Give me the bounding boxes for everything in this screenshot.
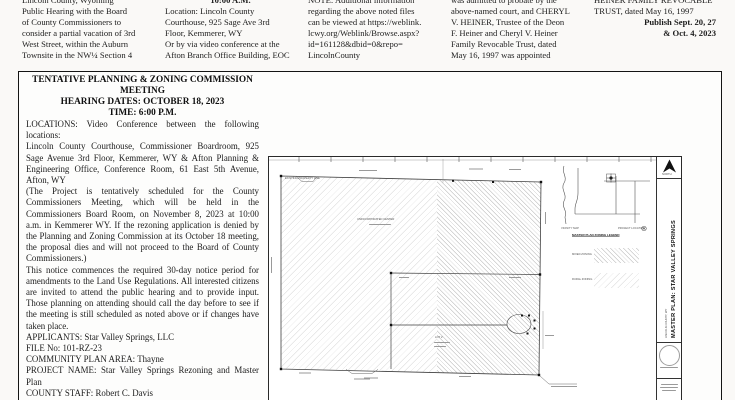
border-tick-marks bbox=[299, 157, 651, 162]
parcel-hatch-area bbox=[281, 176, 541, 375]
notice-paragraph: APPLICANTS: Star Valley Springs, LLC bbox=[26, 332, 259, 343]
legend-item-label: MIXED ZONING bbox=[572, 253, 592, 256]
property-line-label: EXISTING PROPERTY LINE bbox=[285, 177, 320, 180]
legend-swatch-light-hatch bbox=[594, 273, 639, 288]
notice-text-column: TENTATIVE PLANNING & ZONING COMMISSION M… bbox=[26, 75, 259, 399]
news-col1-body: Public Hearing with the Board of County … bbox=[22, 6, 153, 61]
news-col3-body: regarding the above noted files can be v… bbox=[308, 6, 439, 61]
notice-paragraph: COUNTY STAFF: Robert C. Davis bbox=[26, 388, 259, 399]
news-column-4: was admitted to probate by the above-nam… bbox=[451, 0, 582, 61]
vicinity-right-label: PROJECT LOCATION bbox=[618, 227, 645, 230]
notice-paragraph: LOCATIONS: Video Conference between the … bbox=[26, 119, 259, 141]
publish-dates: Publish Sept. 20, 27 & Oct. 4, 2023 bbox=[594, 17, 722, 39]
notice-paragraph: This notice commences the required 30-da… bbox=[26, 265, 259, 332]
news-column-2: 10:00 A.M. Location: Lincoln County Cour… bbox=[165, 0, 296, 61]
news-column-5: HEINER FAMILY REVOCABLE TRUST, dated May… bbox=[594, 0, 722, 39]
north-arrow-label: NORTH bbox=[662, 173, 672, 176]
firm-info-smudge bbox=[662, 390, 676, 391]
firm-info-cell bbox=[657, 384, 681, 400]
vicinity-map bbox=[563, 166, 650, 224]
area-label: UNINCORPORATED CENTER bbox=[357, 218, 394, 221]
sheet-title: MASTER PLAN: STAR VALLEY SPRINGS bbox=[671, 182, 677, 338]
notice-paragraph: (The Project is tentatively scheduled fo… bbox=[26, 186, 259, 264]
news-col4-body: above-named court, and CHERYL V. HEINER,… bbox=[451, 6, 582, 61]
news-column-3: NOTE: Additional information regarding t… bbox=[308, 0, 439, 61]
sheet-title-vertical: LINCOLN COUNTY, WY MASTER PLAN: STAR VAL… bbox=[665, 182, 677, 338]
lot-label-smudge bbox=[434, 342, 450, 343]
project-location-marker bbox=[607, 174, 616, 183]
lot-label-smudge bbox=[434, 346, 446, 347]
notice-paragraph: Lincoln County Courthouse, Commissioner … bbox=[26, 141, 259, 186]
firm-info-smudge bbox=[660, 387, 678, 388]
stamp-cell bbox=[657, 345, 681, 379]
notice-paragraph: FILE No: 101-RZ-23 bbox=[26, 343, 259, 354]
site-plan-sheet-1: EXISTING PROPERTY LINE UNINCORPORATED CE… bbox=[268, 156, 682, 400]
title-block: NORTH LINCOLN COUNTY, WY MASTER PLAN: ST… bbox=[656, 157, 681, 400]
public-notice-box: TENTATIVE PLANNING & ZONING COMMISSION M… bbox=[18, 71, 722, 400]
news-col5-body: TRUST, dated May 16, 1997 bbox=[594, 6, 722, 17]
legend-title: MASTER PLAN ZONING LEGEND bbox=[572, 234, 620, 237]
notice-title: TENTATIVE PLANNING & ZONING COMMISSION M… bbox=[26, 75, 259, 119]
notice-paragraph: PROJECT NAME: Star Valley Springs Rezoni… bbox=[26, 365, 259, 387]
legend-item-label: RURAL ZONING bbox=[572, 278, 592, 281]
firm-info-smudge bbox=[661, 384, 678, 385]
news-column-1: Lincoln County, Wyoming Public Hearing w… bbox=[22, 0, 153, 61]
legend-swatch-dense-hatch bbox=[594, 248, 639, 263]
parcel-hatch-dense bbox=[437, 176, 541, 375]
sheet-title-cell: LINCOLN COUNTY, WY MASTER PLAN: STAR VAL… bbox=[657, 179, 681, 343]
parcel-hatch-light bbox=[281, 176, 437, 375]
notice-paragraph: COMMUNITY PLAN AREA: Thayne bbox=[26, 354, 259, 365]
vicinity-left-label: VICINITY MAP bbox=[561, 227, 579, 230]
stamp-caption-smudge bbox=[660, 367, 678, 368]
newspaper-public-notice-page: { "page": { "bg": "#faf9f7", "ink": "#1d… bbox=[0, 0, 735, 400]
lot-label: LOT 2 bbox=[435, 336, 442, 339]
area-label-sub-smudge bbox=[369, 224, 391, 225]
news-col2-body: Location: Lincoln County Courthouse, 925… bbox=[165, 6, 296, 61]
sheet-subtitle: LINCOLN COUNTY, WY bbox=[665, 268, 668, 338]
engineer-stamp-circle bbox=[659, 345, 680, 366]
north-arrow-cell: NORTH bbox=[657, 157, 681, 179]
